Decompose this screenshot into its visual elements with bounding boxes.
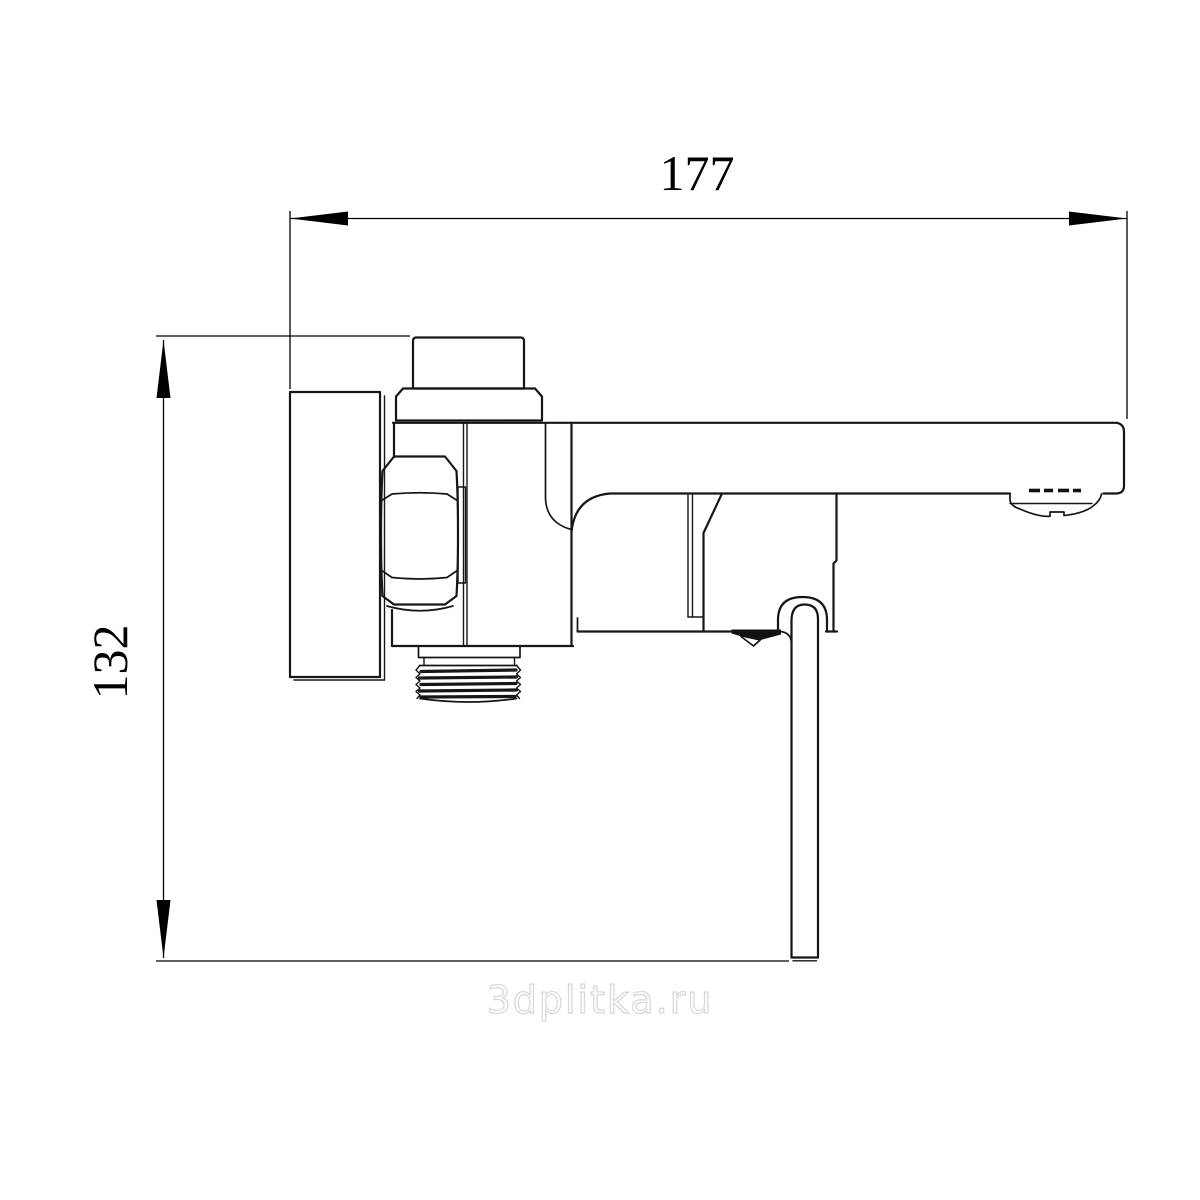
- mounting-nut: [381, 457, 458, 611]
- spout-aerator: [1010, 491, 1102, 517]
- dimension-vertical: 132: [82, 336, 789, 961]
- dimension-label-height: 132: [82, 625, 138, 700]
- arm-joint-seam: [546, 423, 572, 530]
- under-arm-valve: [578, 494, 838, 647]
- lever-handle: [778, 597, 827, 961]
- dimension-label-width: 177: [660, 145, 735, 201]
- watermark: 3dplitka.ru: [487, 978, 714, 1022]
- faucet-side-view-drawing: 177 132: [0, 0, 1200, 1200]
- shower-outlet-thread: [416, 646, 521, 702]
- handle-stop-wedge: [732, 630, 782, 641]
- arrowhead-left: [290, 212, 348, 226]
- arrowhead-top: [157, 340, 171, 398]
- handle-rod: [792, 605, 819, 958]
- arrowhead-bottom: [157, 900, 171, 958]
- wall-plate: [290, 392, 385, 680]
- dimension-horizontal: 177: [290, 145, 1127, 419]
- handle-bend-outer: [778, 597, 827, 633]
- cap-flange: [396, 389, 542, 421]
- technical-drawing-page: 177 132: [0, 0, 1200, 1200]
- cartridge-cap: [396, 338, 542, 421]
- arrowhead-right: [1069, 212, 1127, 226]
- faucet-drawing: [290, 338, 1124, 961]
- nut-washer-edge: [387, 606, 453, 611]
- nut-tab: [458, 487, 466, 583]
